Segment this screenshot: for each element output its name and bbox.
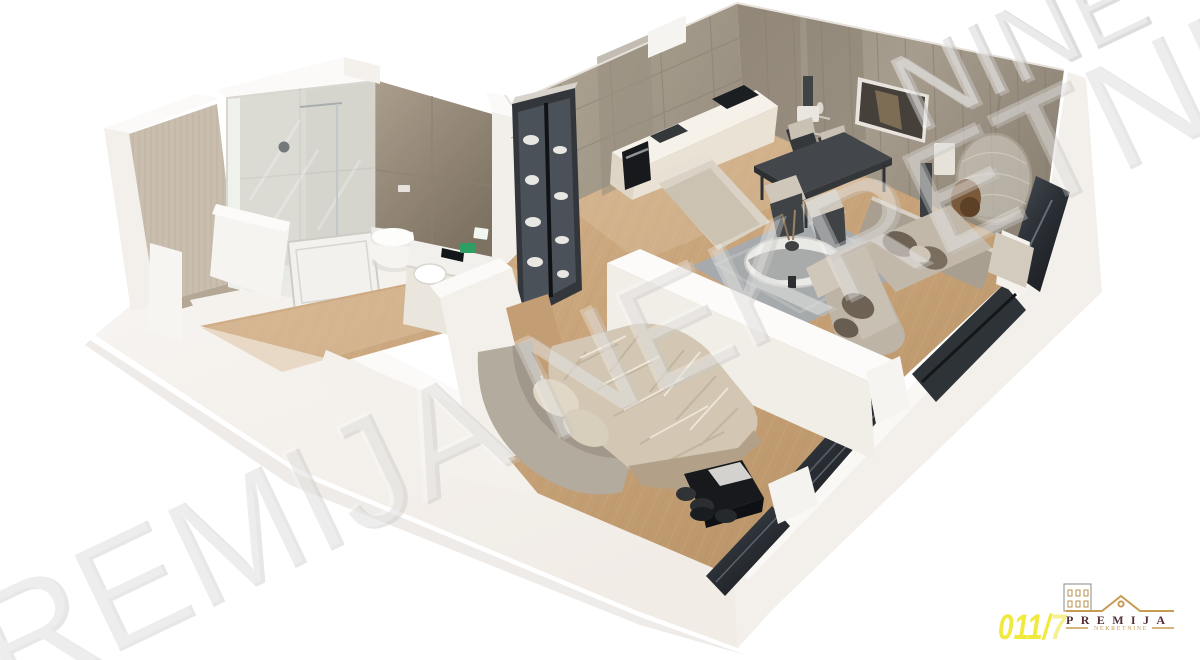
svg-text:011/7: 011/7 [998,607,1067,647]
svg-text:NEKRETNINE: NEKRETNINE [1094,626,1148,632]
svg-text:PREMIJA: PREMIJA [1066,613,1172,627]
